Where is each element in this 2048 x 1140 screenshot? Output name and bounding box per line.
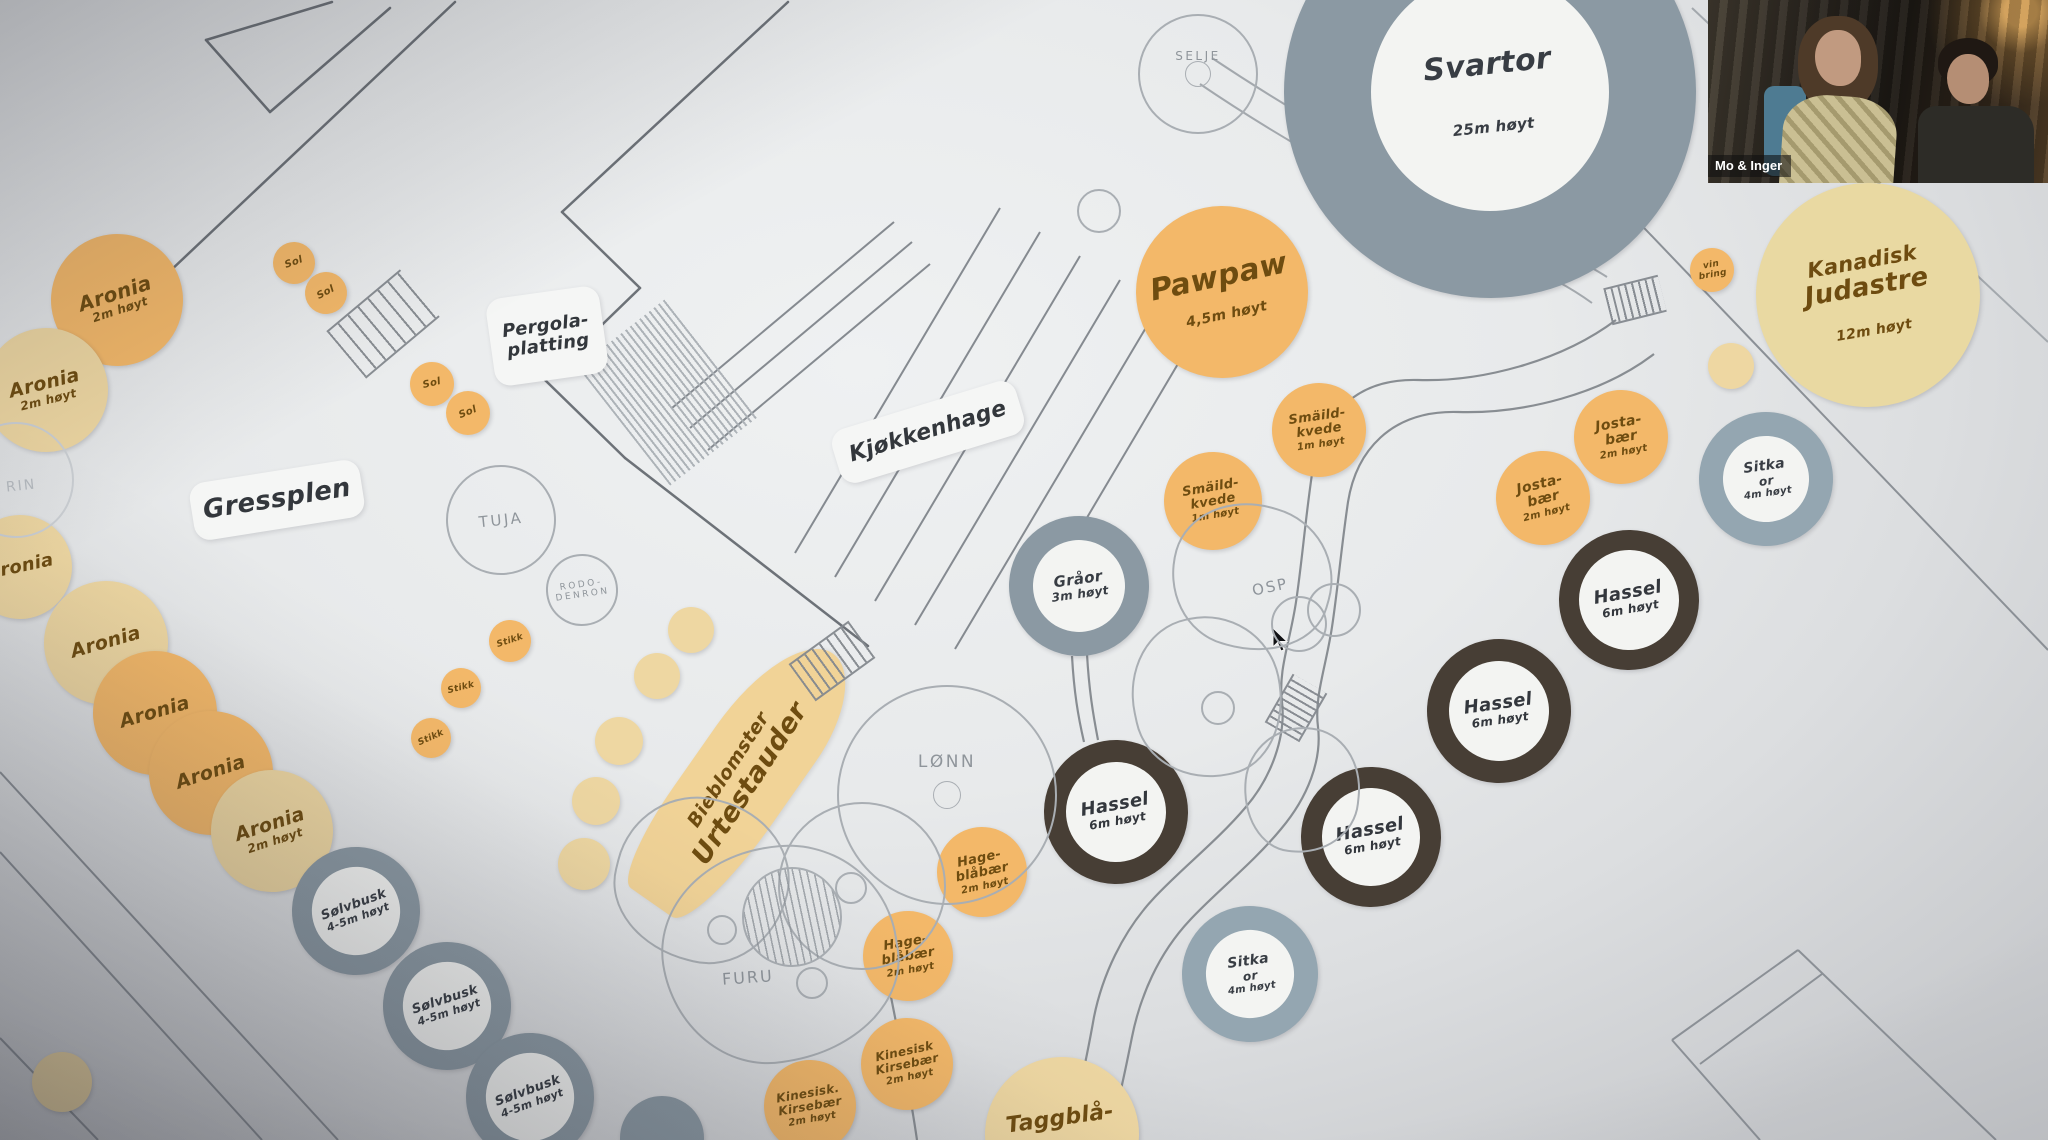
small-pale-right	[1708, 343, 1754, 389]
person-mo-face	[1947, 54, 1989, 104]
person-inger-face	[1815, 30, 1861, 86]
label-pergola-platting: Pergola-platting	[484, 284, 609, 387]
pencil-osp-circle-3	[1201, 691, 1235, 725]
video-call-screenshare: Mo & Inger Svartor25m høytSELJEPawpaw4,5…	[0, 0, 2048, 1140]
person-mo-body	[1918, 106, 2034, 183]
pencil-osp-circle-2	[1307, 583, 1361, 637]
small-pale-4	[572, 777, 620, 825]
small-pale-2	[634, 653, 680, 699]
pencil-small-top	[1077, 189, 1121, 233]
pencil-furu-dot-2	[796, 967, 828, 999]
pencil-furu-dot-3	[835, 872, 867, 904]
small-pale-1	[668, 607, 714, 653]
person-inger-scarf	[1779, 92, 1899, 183]
webcam-tile[interactable]: Mo & Inger	[1708, 0, 2048, 183]
plant-selje: SELJE	[1138, 14, 1258, 134]
small-pale-3	[595, 717, 643, 765]
participant-name-label: Mo & Inger	[1708, 155, 1791, 177]
small-pale-corner	[32, 1052, 92, 1112]
pencil-furu-dot-1	[707, 915, 737, 945]
small-pale-5	[558, 838, 610, 890]
text-rin: RIN	[5, 476, 37, 495]
text-furu: FURU	[721, 966, 774, 989]
